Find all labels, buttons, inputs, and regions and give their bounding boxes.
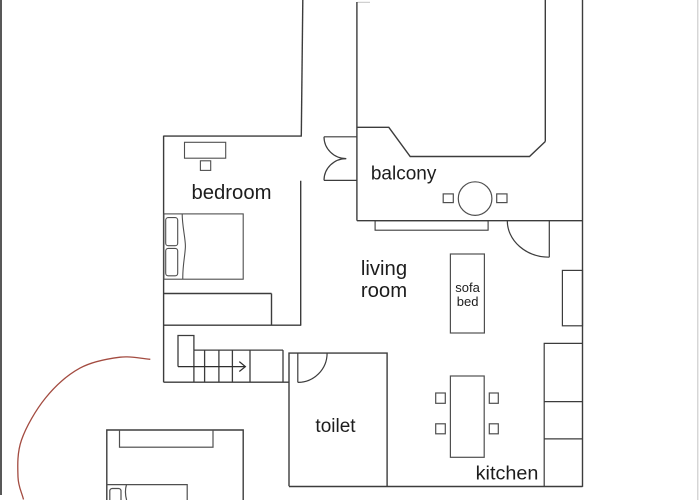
svg-text:balcony: balcony: [371, 163, 437, 184]
svg-text:kitchen: kitchen: [476, 463, 539, 485]
svg-text:living: living: [361, 258, 407, 280]
svg-text:bedroom: bedroom: [191, 182, 271, 204]
svg-text:sofa: sofa: [455, 280, 480, 295]
svg-text:toilet: toilet: [315, 416, 356, 437]
svg-text:room: room: [361, 280, 407, 302]
svg-text:bed: bed: [457, 294, 479, 309]
